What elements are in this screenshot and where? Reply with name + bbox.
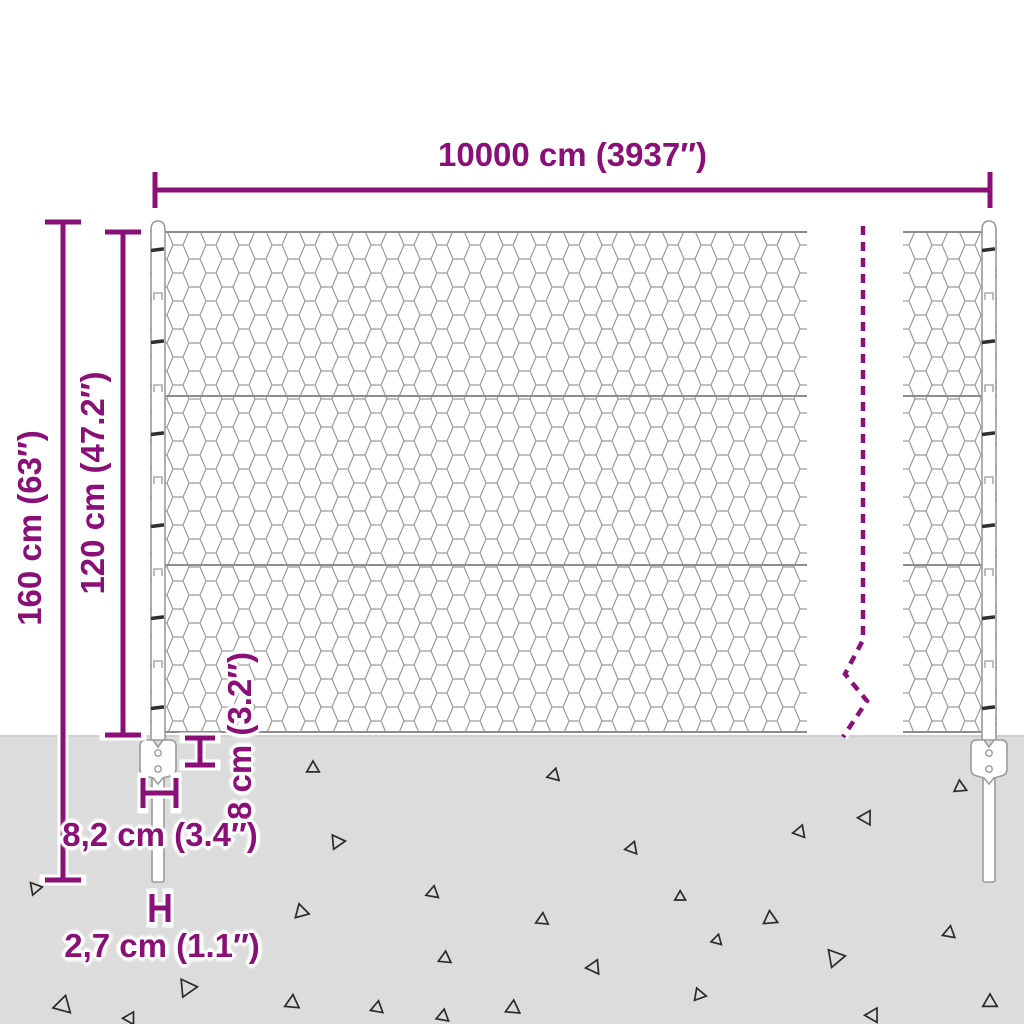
anchor-depth-dimension-line: [185, 738, 215, 765]
soil-triangle: [307, 761, 320, 772]
break-dashed-line: [843, 226, 867, 737]
soil-triangle: [53, 993, 74, 1013]
spike-width-dimension-line: [152, 894, 168, 922]
soil-triangle: [438, 950, 452, 962]
soil-triangle: [426, 886, 442, 903]
soil-triangle: [690, 988, 707, 1004]
soil-triangle: [865, 1004, 884, 1022]
anchor-width-dimension-label: 8,2 cm (3.4″): [62, 816, 258, 854]
soil-triangle: [940, 926, 955, 942]
soil-triangle: [983, 994, 997, 1006]
soil-triangle: [505, 999, 520, 1013]
soil-triangle: [547, 767, 562, 781]
ground-spike-right: [983, 776, 995, 882]
soil-triangle: [175, 979, 198, 1001]
soil-triangle: [953, 779, 967, 791]
soil-triangle: [793, 825, 810, 841]
anchor-plate-right: [971, 740, 1007, 784]
fence-dimension-diagram: 10000 cm (3937″) 160 cm (63″) 120 cm (47…: [0, 0, 1024, 1024]
soil-triangle: [672, 891, 685, 905]
anchor-depth-dimension-label: 8 cm (3.2″): [221, 652, 259, 820]
soil-triangle: [823, 950, 845, 971]
soil-triangle: [711, 933, 724, 945]
soil-triangle: [858, 811, 877, 829]
soil-triangle: [327, 835, 345, 852]
soil-triangle: [759, 911, 777, 930]
total-height-dimension-label: 160 cm (63″): [11, 430, 49, 626]
mesh-height-dimension-label: 120 cm (47.2″): [74, 371, 112, 594]
width-dimension-label: 10000 cm (3937″): [155, 136, 990, 174]
soil-triangle: [368, 1001, 383, 1017]
soil-triangle: [533, 913, 548, 929]
soil-triangle: [436, 1008, 450, 1021]
soil-triangle: [123, 1009, 139, 1024]
spike-width-dimension-label: 2,7 cm (1.1″): [64, 927, 260, 965]
soil-triangle: [586, 957, 604, 974]
soil-triangle: [625, 839, 641, 854]
width-dimension-line: [155, 172, 990, 208]
soil-triangle: [282, 995, 299, 1013]
soil-triangle: [290, 904, 309, 923]
